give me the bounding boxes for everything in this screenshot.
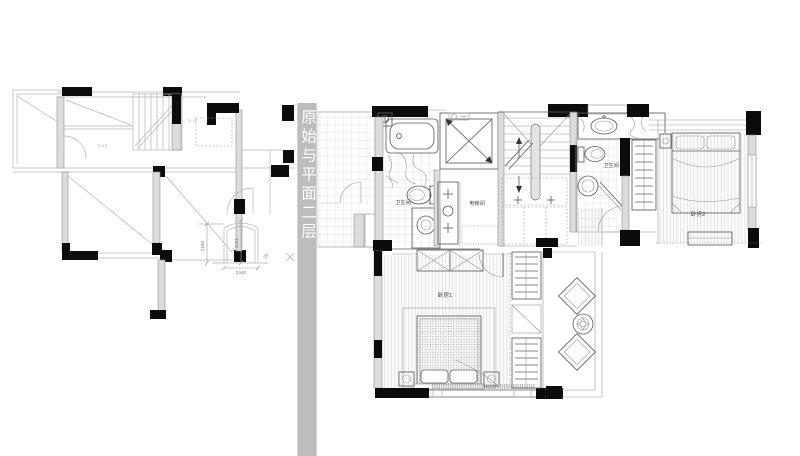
dim-offset: 25 — [262, 252, 269, 259]
floorplan-canvas: TL 10 TL 1F 2160 2251 2440 25 — [0, 0, 800, 456]
vanity-sink-icon — [578, 113, 665, 139]
stair-rail — [531, 124, 540, 200]
door-arc — [64, 136, 86, 158]
dim-width-bottom: 2440 — [236, 270, 247, 275]
duct-shaft: 电梯间 — [438, 182, 498, 246]
left-plan-note-2: TL 1F — [187, 118, 198, 123]
wardrobe-bedroom-1 — [510, 252, 543, 388]
terrace — [543, 248, 602, 398]
stair-original — [133, 94, 182, 150]
room-label-bathroom-1: 卫生间 — [395, 198, 411, 206]
original-plan: TL 10 TL 1F 2160 2251 2440 25 — [13, 87, 295, 319]
room-label-elevator: 电梯间 — [469, 199, 485, 207]
elevator-shaft — [428, 110, 498, 169]
bathroom-1: 卫生间 — [372, 106, 440, 251]
bathroom-2: 卫生间 — [576, 105, 665, 246]
dim-height-center: 2251 — [234, 237, 239, 248]
room-label-bedroom-1: 卧房1 — [438, 291, 453, 299]
side-table-icon — [573, 314, 593, 334]
floorplan-screenshot: TL 10 TL 1F 2160 2251 2440 25 — [0, 0, 800, 456]
section-banner: 原始与平面二层 — [297, 103, 317, 456]
dim-height-left: 2160 — [200, 240, 205, 251]
bedroom-1: 卧房1 — [374, 249, 563, 399]
armchair-icon — [559, 334, 596, 371]
room-label-bathroom-2: 卫生间 — [603, 161, 619, 169]
stairwell — [498, 104, 588, 247]
section-banner-text: 原始与平面二层 — [298, 109, 316, 242]
left-plan-note-1: TL 10 — [97, 143, 108, 148]
bathtub-icon — [386, 119, 438, 153]
room-label-bedroom-2: 卧房2 — [691, 210, 706, 218]
second-floor-plan: 卫生间 电梯间 — [318, 104, 762, 399]
armchair-icon — [559, 278, 596, 315]
bedroom-2: 卧房2 — [649, 111, 762, 248]
